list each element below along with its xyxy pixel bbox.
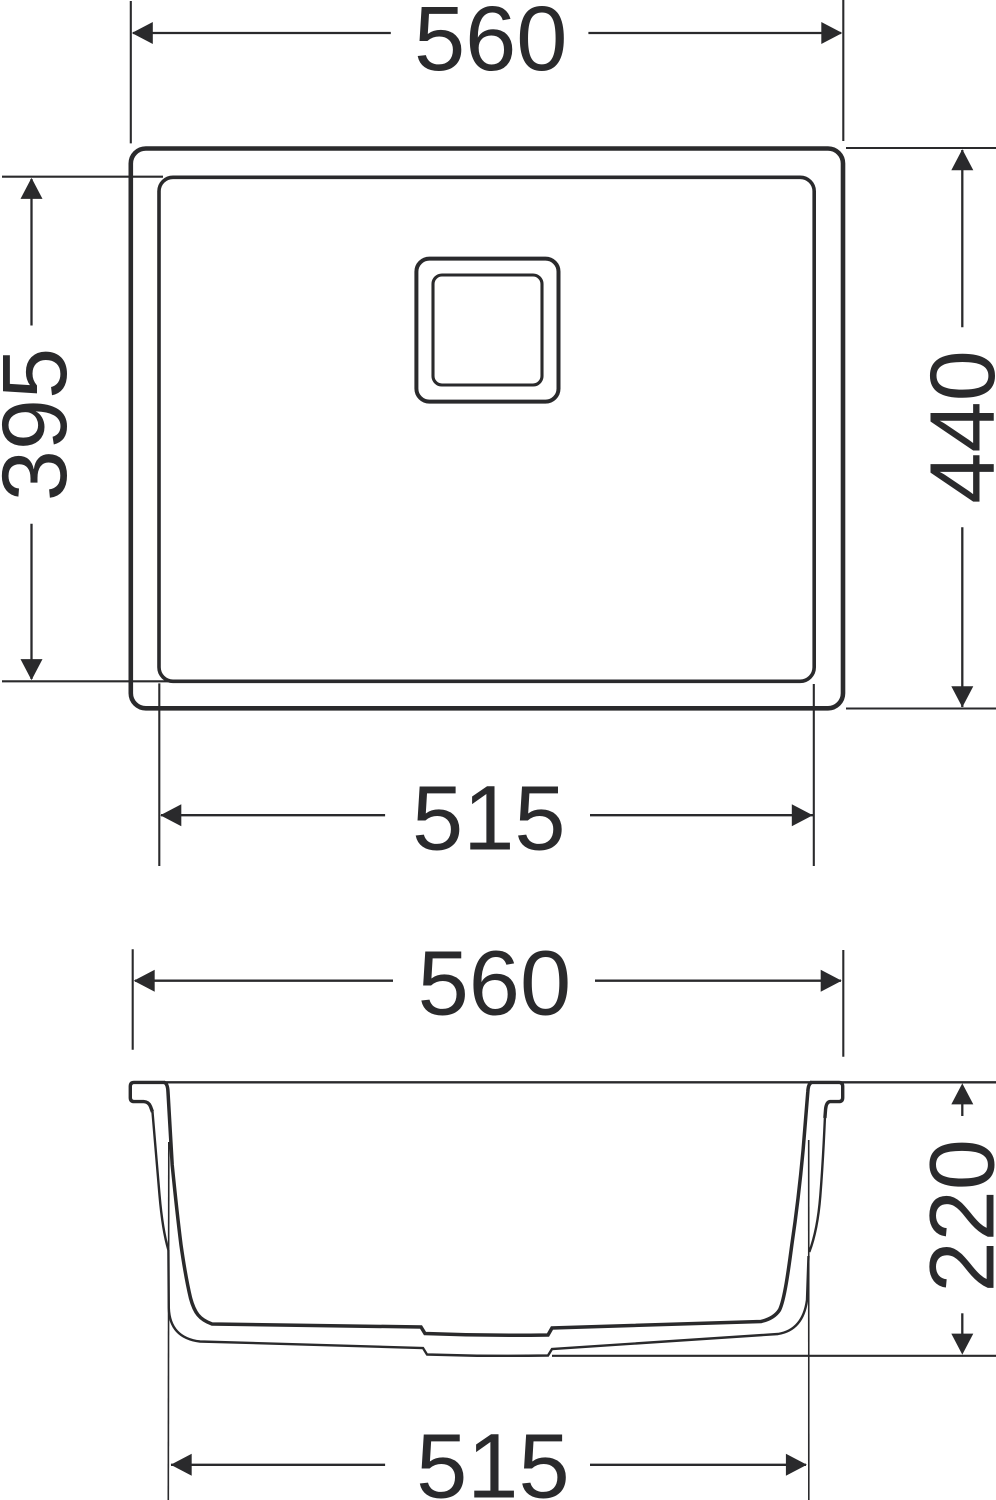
svg-text:395: 395 — [0, 348, 86, 502]
svg-text:515: 515 — [412, 767, 566, 869]
svg-text:220: 220 — [911, 1139, 996, 1293]
svg-text:440: 440 — [912, 350, 996, 504]
svg-text:515: 515 — [416, 1416, 570, 1500]
svg-text:560: 560 — [418, 932, 572, 1034]
svg-text:560: 560 — [414, 0, 568, 90]
